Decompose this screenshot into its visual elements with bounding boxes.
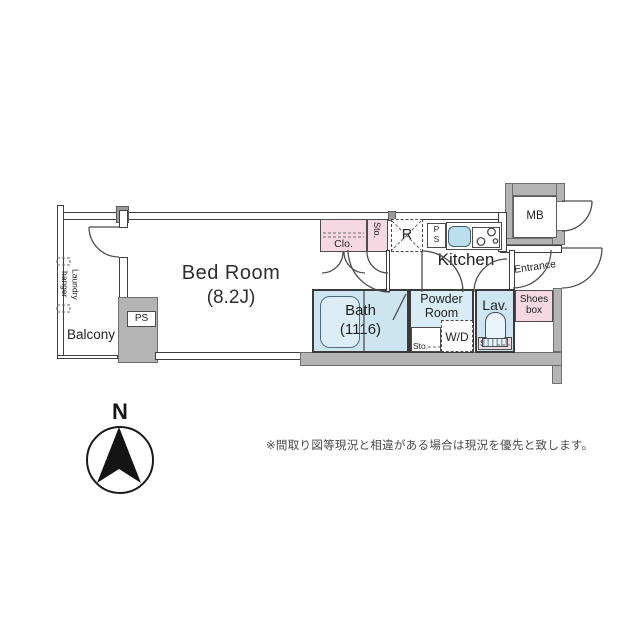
closet-label: Clo. <box>321 238 366 250</box>
refrigerator-box: R <box>391 219 423 252</box>
bedroom-door-leaf <box>386 250 390 292</box>
bedroom-left-wall-lower <box>119 257 128 299</box>
kitchen-sink <box>448 226 471 247</box>
bedroom-window-wall <box>155 352 305 360</box>
stove <box>472 227 500 248</box>
bedroom-name-label: Bed Room <box>138 262 324 285</box>
entrance-right-wall <box>553 288 562 352</box>
compass-n-label: N <box>106 399 134 425</box>
closet-door-arcs <box>322 252 365 273</box>
pipe-space-kitchen-box: P S <box>427 223 446 248</box>
washer-dryer-label: W/D <box>442 330 472 344</box>
pipe-space-lower-label: PS <box>128 313 155 324</box>
disclaimer-text: ※間取り図等現況と相違がある場合は現況を優先と致します。 <box>266 437 593 453</box>
refrigerator-label: R <box>392 227 422 243</box>
lav-label: Lav. <box>477 297 513 313</box>
floor-plan-page: PS MB Clo. Sto. R P S Bath (1116) <box>0 0 640 640</box>
bath-size-label: (1116) <box>314 321 407 338</box>
closet-box: Clo. <box>320 219 367 252</box>
storage-hall-door-arc <box>367 252 388 273</box>
storage-powder-label: Sto. <box>413 341 428 351</box>
storage-hall-box: Sto. <box>367 219 388 252</box>
bath-label: Bath <box>314 302 407 319</box>
lav-room: Lav. Sto. <box>475 289 515 353</box>
toilet-tank <box>482 338 508 347</box>
bottom-wall <box>300 352 562 366</box>
storage-powder-box: Sto. <box>411 327 441 352</box>
bedroom-left-wall-upper <box>119 210 128 228</box>
balcony-door-arc <box>89 227 119 257</box>
powder-room-label: Powder Room <box>411 293 472 321</box>
bedroom-size-label: (8.2J) <box>138 287 324 309</box>
balcony-label: Balcony <box>62 327 120 342</box>
kitchen-label: Kitchen <box>424 250 508 270</box>
toilet-bowl-icon <box>485 312 506 339</box>
mb-wall-right-upper <box>556 183 565 202</box>
washer-dryer-box: W/D <box>441 320 473 352</box>
storage-hall-label: Sto. <box>372 222 382 238</box>
bath-room: Bath (1116) <box>312 289 409 353</box>
pipe-space-kitchen-label: P S <box>428 225 445 245</box>
mb-label: MB <box>514 210 556 222</box>
entrance-door-arc <box>562 248 602 288</box>
bottom-right-stub-wall <box>552 365 562 384</box>
mb-room: MB <box>513 196 557 238</box>
bedroom-door-arc <box>348 250 390 292</box>
pipe-space-lower-box: PS <box>127 311 156 327</box>
entrance-label: Entrance <box>512 258 557 276</box>
compass-icon <box>87 427 153 493</box>
laundry-hanger-label: Laundry hanger <box>60 252 80 316</box>
balcony-bottom-edge <box>57 355 118 359</box>
mb-door-arc <box>562 201 592 231</box>
shoes-box-label: Shoes box <box>516 294 552 316</box>
shoes-box: Shoes box <box>515 290 553 322</box>
